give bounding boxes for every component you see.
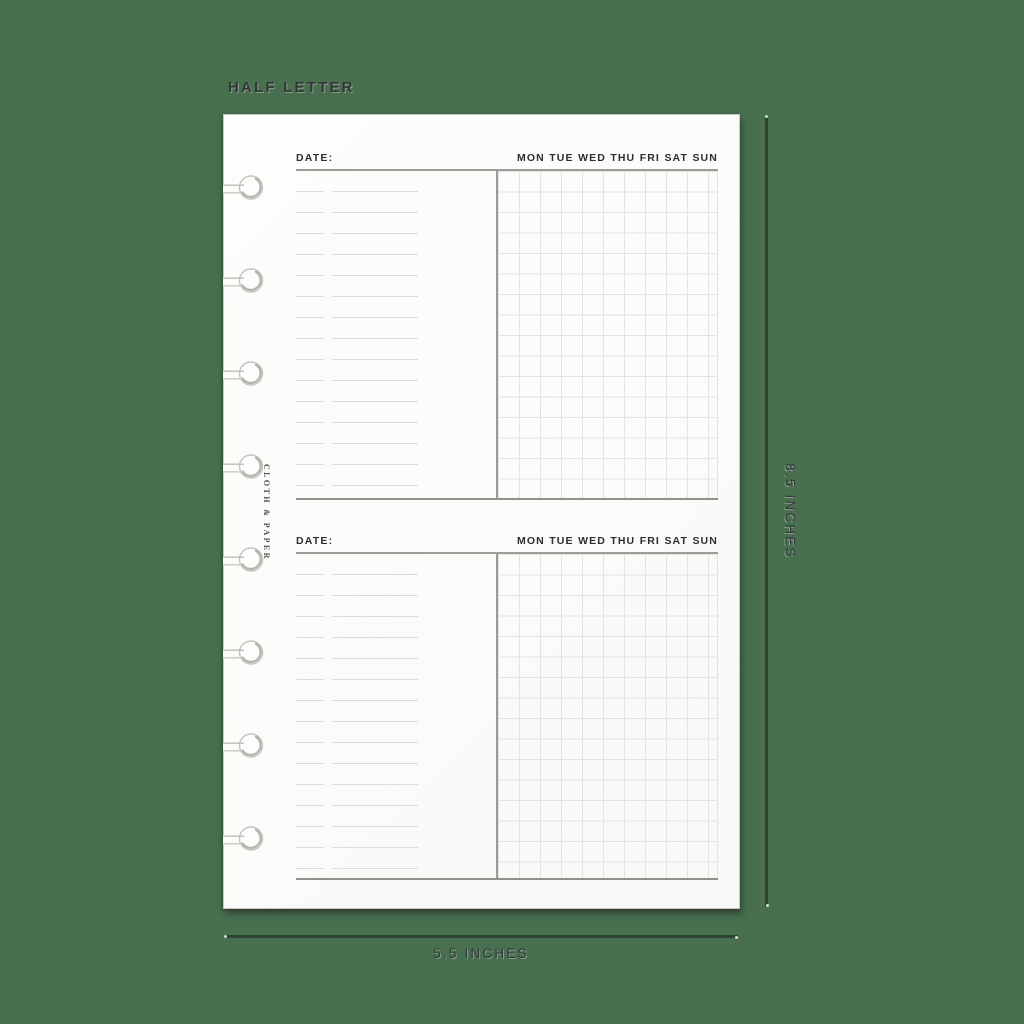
day-header-row: MON TUE WED THU FRI SAT SUN — [517, 535, 718, 547]
disc-punch-icon — [223, 641, 263, 664]
size-label: HALF LETTER — [228, 79, 355, 96]
day-header-fri: FRI — [640, 152, 660, 164]
day-header-mon: MON — [517, 152, 545, 164]
section-header: DATE: MON TUE WED THU FRI SAT SUN — [296, 142, 718, 171]
day-header-sun: SUN — [692, 535, 717, 547]
disc-punch-icon — [223, 734, 263, 757]
section-body — [296, 171, 718, 500]
notes-lines-area — [296, 554, 496, 878]
weekly-section-1: DATE: MON TUE WED THU FRI SAT SUN — [296, 142, 718, 500]
day-header-tue: TUE — [549, 535, 573, 547]
day-header-sun: SUN — [692, 152, 717, 164]
date-label: DATE: — [296, 535, 333, 547]
disc-punch-icon — [223, 362, 263, 385]
notes-lines-area — [296, 171, 496, 498]
day-header-tue: TUE — [549, 152, 573, 164]
planner-page: CLOTH & PAPER DATE: MON TUE WED THU FRI … — [223, 114, 740, 909]
day-header-thu: THU — [610, 152, 635, 164]
tracker-grid-area — [496, 171, 718, 498]
day-header-wed: WED — [578, 535, 606, 547]
day-header-thu: THU — [610, 535, 635, 547]
section-body — [296, 554, 718, 880]
disc-punch-icon — [223, 548, 263, 571]
day-header-row: MON TUE WED THU FRI SAT SUN — [517, 152, 718, 164]
day-header-mon: MON — [517, 535, 545, 547]
height-dimension-label: 8.5 INCHES — [783, 463, 798, 559]
date-label: DATE: — [296, 152, 333, 164]
day-header-fri: FRI — [640, 535, 660, 547]
day-header-sat: SAT — [664, 535, 688, 547]
section-header: DATE: MON TUE WED THU FRI SAT SUN — [296, 525, 718, 554]
weekly-section-2: DATE: MON TUE WED THU FRI SAT SUN — [296, 525, 718, 880]
disc-punch-icon — [223, 455, 263, 478]
height-dimension-line — [765, 115, 768, 907]
brand-logo: CLOTH & PAPER — [260, 479, 273, 545]
disc-punch-icon — [223, 827, 263, 850]
day-header-wed: WED — [578, 152, 606, 164]
tracker-grid-area — [496, 554, 718, 878]
disc-punch-icon — [223, 269, 263, 292]
product-mockup: HALF LETTER CLOTH & PAPER DATE: MON TUE … — [0, 0, 1024, 1024]
width-dimension-label: 5.5 INCHES — [433, 946, 529, 961]
day-header-sat: SAT — [664, 152, 688, 164]
width-dimension-line — [224, 935, 738, 938]
disc-punch-icon — [223, 176, 263, 199]
